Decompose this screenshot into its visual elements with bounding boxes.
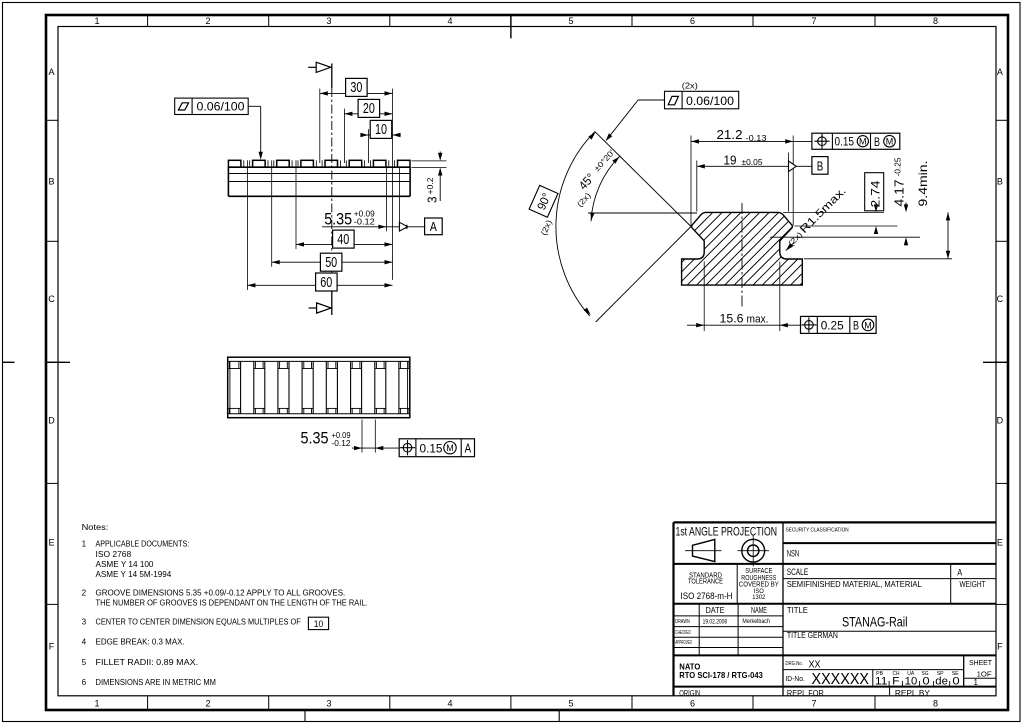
svg-text:D: D bbox=[997, 416, 1004, 426]
svg-text:F: F bbox=[892, 676, 900, 688]
svg-text:±0.05: ±0.05 bbox=[742, 158, 764, 167]
svg-text:1OF: 1OF bbox=[977, 672, 992, 679]
svg-text:Merkelbach: Merkelbach bbox=[742, 619, 770, 625]
svg-text:RTO SCI-178 / RTG-043: RTO SCI-178 / RTG-043 bbox=[679, 670, 763, 680]
svg-text:5: 5 bbox=[82, 658, 87, 667]
svg-text:M: M bbox=[446, 443, 454, 454]
svg-text:7: 7 bbox=[811, 16, 816, 26]
svg-text:THE NUMBER OF GROOVES IS DEPEN: THE NUMBER OF GROOVES IS DEPENDANT ON TH… bbox=[96, 599, 368, 608]
svg-text:REPL.FOR: REPL.FOR bbox=[787, 689, 824, 698]
svg-text:DRG.No.: DRG.No. bbox=[785, 661, 803, 667]
svg-text:6: 6 bbox=[690, 16, 695, 26]
svg-text:SHEET: SHEET bbox=[969, 660, 993, 667]
svg-text:XXXXXX: XXXXXX bbox=[812, 671, 870, 688]
svg-text:19.02.2008: 19.02.2008 bbox=[703, 619, 728, 625]
svg-text:-0.12: -0.12 bbox=[332, 439, 352, 448]
svg-text:CHECKED: CHECKED bbox=[675, 630, 691, 636]
svg-text:0.15: 0.15 bbox=[835, 135, 855, 149]
svg-text:M: M bbox=[864, 320, 872, 331]
svg-text:NAME: NAME bbox=[751, 606, 767, 615]
svg-text:40: 40 bbox=[337, 232, 349, 248]
svg-text:SECURITY CLASSIFICATION: SECURITY CLASSIFICATION bbox=[786, 528, 849, 534]
svg-text:-0.25: -0.25 bbox=[894, 157, 903, 177]
svg-text:M: M bbox=[886, 137, 894, 148]
svg-text:C: C bbox=[997, 294, 1004, 304]
svg-text:6: 6 bbox=[82, 678, 87, 687]
svg-text:+0.2: +0.2 bbox=[426, 177, 435, 195]
svg-text:STANAG-Rail: STANAG-Rail bbox=[842, 613, 908, 629]
svg-text:2: 2 bbox=[205, 699, 210, 709]
svg-text:4: 4 bbox=[447, 699, 452, 709]
svg-text:SURFACE: SURFACE bbox=[745, 568, 772, 575]
svg-text:de: de bbox=[935, 676, 948, 688]
svg-text:M: M bbox=[859, 137, 867, 148]
svg-text:0.15: 0.15 bbox=[420, 441, 443, 455]
svg-text:4: 4 bbox=[447, 16, 452, 26]
svg-text:FILLET RADII: 0.89 MAX.: FILLET RADII: 0.89 MAX. bbox=[96, 658, 199, 667]
svg-text:4.17: 4.17 bbox=[892, 180, 907, 207]
svg-text:A: A bbox=[997, 67, 1003, 77]
svg-text:C: C bbox=[48, 294, 55, 304]
svg-text:TITLE GERMAN: TITLE GERMAN bbox=[787, 631, 838, 640]
svg-text:0.06/100: 0.06/100 bbox=[197, 100, 245, 114]
svg-text:max.: max. bbox=[747, 314, 769, 326]
svg-text:B: B bbox=[874, 135, 880, 149]
svg-text:WEIGHT: WEIGHT bbox=[960, 580, 986, 589]
svg-text:60: 60 bbox=[320, 275, 332, 291]
svg-text:ASME Y 14 5M-1994: ASME Y 14 5M-1994 bbox=[96, 570, 172, 579]
svg-text:7: 7 bbox=[811, 699, 816, 709]
svg-text:1: 1 bbox=[82, 540, 87, 549]
svg-text:SCALE: SCALE bbox=[787, 567, 809, 577]
svg-text:F: F bbox=[49, 642, 55, 652]
svg-text:A: A bbox=[48, 67, 54, 77]
svg-text:0: 0 bbox=[952, 676, 959, 688]
svg-text:11: 11 bbox=[875, 676, 888, 688]
svg-text:1: 1 bbox=[974, 678, 979, 687]
svg-text:ID-No.: ID-No. bbox=[785, 676, 805, 683]
svg-text:A: A bbox=[465, 441, 472, 456]
svg-text:GROOVE DIMENSIONS 5.35 +0.09/-: GROOVE DIMENSIONS 5.35 +0.09/-0.12 APPLY… bbox=[96, 589, 346, 598]
svg-text:0.25: 0.25 bbox=[821, 318, 844, 332]
svg-text:F: F bbox=[997, 642, 1003, 652]
svg-text:DIMENSIONS ARE IN METRIC MM: DIMENSIONS ARE IN METRIC MM bbox=[96, 678, 217, 687]
svg-text:A: A bbox=[430, 219, 437, 234]
svg-text:2: 2 bbox=[82, 589, 87, 598]
svg-text:5: 5 bbox=[568, 699, 573, 709]
svg-text:TOLERANCE: TOLERANCE bbox=[688, 579, 723, 586]
svg-text:ISO 2768: ISO 2768 bbox=[96, 550, 132, 559]
svg-text:D: D bbox=[48, 416, 55, 426]
svg-text:10: 10 bbox=[905, 676, 918, 688]
svg-text:50: 50 bbox=[325, 255, 337, 271]
svg-text:0.06/100: 0.06/100 bbox=[686, 94, 734, 108]
svg-text:(2x): (2x) bbox=[682, 81, 698, 90]
svg-text:EDGE BREAK: 0.3 MAX.: EDGE BREAK: 0.3 MAX. bbox=[96, 638, 185, 647]
svg-text:2.74: 2.74 bbox=[869, 180, 883, 207]
svg-text:5: 5 bbox=[568, 16, 573, 26]
svg-text:9.4min.: 9.4min. bbox=[916, 161, 930, 207]
svg-text:A: A bbox=[957, 567, 962, 577]
svg-text:APPLICABLE DOCUMENTS:: APPLICABLE DOCUMENTS: bbox=[96, 540, 190, 549]
svg-text:1st ANGLE PROJECTION: 1st ANGLE PROJECTION bbox=[676, 524, 778, 538]
svg-text:8: 8 bbox=[933, 699, 938, 709]
svg-text:ISO 2768-m-H: ISO 2768-m-H bbox=[681, 591, 733, 602]
svg-text:0: 0 bbox=[922, 676, 929, 688]
svg-text:Notes:: Notes: bbox=[82, 523, 109, 532]
svg-text:TITLE: TITLE bbox=[787, 606, 808, 615]
svg-text:6: 6 bbox=[690, 699, 695, 709]
svg-text:ASME Y 14 100: ASME Y 14 100 bbox=[96, 560, 155, 569]
svg-text:REPL.BY: REPL.BY bbox=[895, 689, 931, 698]
svg-text:B: B bbox=[48, 177, 54, 187]
svg-text:20: 20 bbox=[363, 101, 375, 117]
svg-text:30: 30 bbox=[350, 80, 362, 96]
svg-text:4: 4 bbox=[82, 638, 87, 647]
svg-text:3: 3 bbox=[326, 699, 331, 709]
svg-text:1: 1 bbox=[94, 16, 99, 26]
svg-text:5.35: 5.35 bbox=[301, 430, 329, 448]
svg-text:-0.13: -0.13 bbox=[746, 134, 768, 143]
svg-text:3: 3 bbox=[326, 16, 331, 26]
svg-text:CENTER TO CENTER DIMENSION EQU: CENTER TO CENTER DIMENSION EQUALS MULTIP… bbox=[96, 618, 301, 627]
svg-text:10: 10 bbox=[375, 122, 387, 138]
svg-text:-0.12: -0.12 bbox=[354, 218, 376, 227]
svg-text:8: 8 bbox=[933, 16, 938, 26]
svg-text:B: B bbox=[853, 319, 859, 333]
svg-text:1: 1 bbox=[94, 699, 99, 709]
svg-text:SEMIFINISHED MATERIAL, MATERIA: SEMIFINISHED MATERIAL, MATERIAL bbox=[787, 580, 923, 589]
svg-text:3: 3 bbox=[82, 618, 87, 627]
svg-text:2: 2 bbox=[205, 16, 210, 26]
svg-text:19: 19 bbox=[724, 153, 737, 168]
svg-text:XX: XX bbox=[809, 659, 821, 670]
svg-text:B: B bbox=[997, 177, 1003, 187]
svg-text:E: E bbox=[48, 538, 54, 548]
svg-text:10: 10 bbox=[314, 619, 324, 629]
svg-text:21.2: 21.2 bbox=[717, 127, 743, 142]
svg-text:B: B bbox=[817, 159, 824, 174]
svg-text:15.6: 15.6 bbox=[720, 312, 744, 326]
svg-text:NSN: NSN bbox=[787, 548, 800, 558]
svg-text:APPROVED: APPROVED bbox=[675, 640, 692, 646]
svg-text:DATE: DATE bbox=[706, 606, 725, 615]
svg-text:ORIGIN: ORIGIN bbox=[679, 689, 700, 698]
svg-text:5.35: 5.35 bbox=[324, 211, 352, 229]
svg-text:COVERED BY: COVERED BY bbox=[739, 582, 779, 589]
svg-text:DRAWN: DRAWN bbox=[675, 619, 690, 625]
svg-text:3: 3 bbox=[425, 197, 440, 204]
svg-text:1302: 1302 bbox=[752, 595, 766, 601]
svg-text:E: E bbox=[997, 538, 1003, 548]
